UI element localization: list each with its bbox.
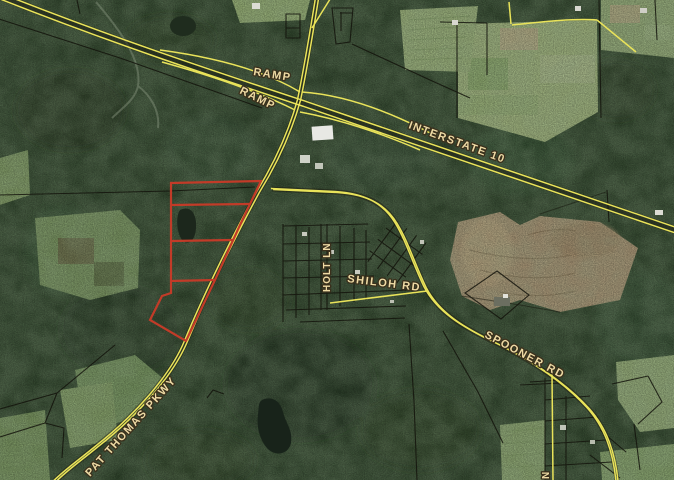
highlight-parcel-divider-3 xyxy=(170,280,215,281)
highlight-parcel-divider-2 xyxy=(171,240,233,241)
label-holt-ln: HOLT LN xyxy=(322,242,333,292)
terrain-grain-overlay xyxy=(0,0,674,480)
map-canvas[interactable]: RAMP RAMP INTERSTATE 10 SHILOH RD SPOONE… xyxy=(0,0,674,480)
highlight-parcel-divider-1 xyxy=(171,204,250,205)
south-side-road xyxy=(552,374,553,480)
map-viewport[interactable]: RAMP RAMP INTERSTATE 10 SHILOH RD SPOONE… xyxy=(0,0,674,480)
terrain-base xyxy=(0,0,674,480)
building-homestead xyxy=(494,297,510,306)
building-large xyxy=(312,125,334,140)
label-edge-partial: N xyxy=(541,471,552,479)
